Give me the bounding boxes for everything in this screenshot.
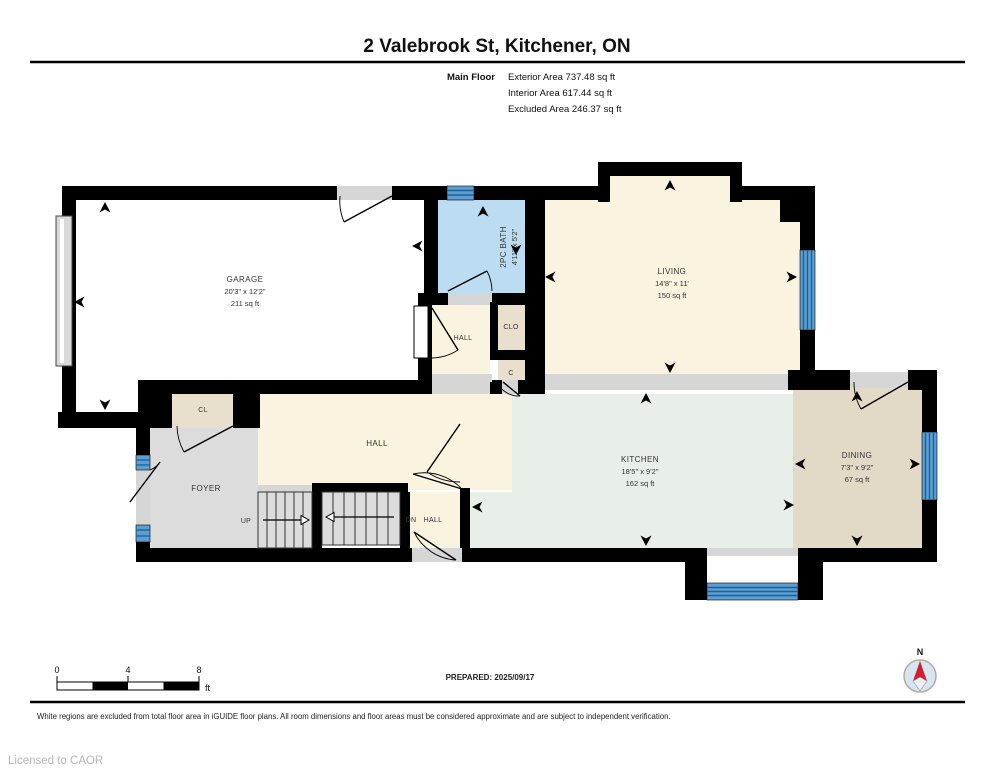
wall-segment bbox=[392, 186, 447, 200]
wall-segment bbox=[788, 370, 850, 390]
footer: 0 4 8 ft PREPARED: 2025/09/17 N White re… bbox=[8, 647, 965, 767]
stat-exterior: Exterior Area 737.48 sq ft bbox=[508, 72, 616, 83]
bath-label: 2PC BATH bbox=[499, 226, 508, 268]
kitchen-label: KITCHEN bbox=[621, 455, 659, 464]
bath-window bbox=[447, 186, 474, 200]
scale-bar: 0 4 8 ft bbox=[54, 665, 210, 693]
garage-label: GARAGE bbox=[227, 275, 264, 284]
wall-segment bbox=[462, 548, 697, 562]
dining-door-opening bbox=[850, 372, 908, 388]
bath-door-threshold bbox=[448, 293, 492, 305]
bay-excluded-floor bbox=[707, 556, 798, 583]
living-window bbox=[800, 250, 815, 330]
wall-segment bbox=[460, 488, 470, 548]
wall-segment bbox=[685, 548, 707, 600]
wall-segment bbox=[424, 186, 438, 302]
wall-segment bbox=[922, 500, 937, 562]
living-kitchen-threshold bbox=[545, 374, 788, 390]
page-title: 2 Valebrook St, Kitchener, ON bbox=[363, 36, 630, 57]
cl-label: CL bbox=[198, 407, 208, 414]
wall-segment bbox=[922, 387, 937, 432]
dining-dims: 7'3" x 9'2" bbox=[841, 463, 874, 472]
clo-label: CLO bbox=[503, 324, 519, 331]
stairs-up bbox=[258, 492, 312, 548]
wall-segment bbox=[812, 548, 937, 562]
bay-threshold bbox=[707, 548, 798, 556]
foyer-label: FOYER bbox=[191, 484, 221, 493]
prepared-date: PREPARED: 2025/09/17 bbox=[446, 673, 535, 682]
garage-dims: 20'3" x 12'2" bbox=[224, 287, 265, 296]
entry-sidelight-top bbox=[136, 455, 150, 470]
stat-interior: Interior Area 617.44 sq ft bbox=[508, 88, 612, 99]
wall-segment bbox=[312, 483, 408, 492]
scale-tick-8: 8 bbox=[196, 665, 201, 675]
dining-label: DINING bbox=[842, 451, 872, 460]
living-dims: 14'8" x 11' bbox=[655, 279, 689, 288]
wall-segment bbox=[233, 394, 260, 428]
compass: N bbox=[904, 647, 936, 692]
dining-area: 67 sq ft bbox=[845, 475, 871, 484]
header: 2 Valebrook St, Kitchener, ON Main Floor… bbox=[30, 36, 965, 115]
garage-door-opening bbox=[337, 186, 392, 200]
wall-segment bbox=[490, 382, 498, 394]
dining-window bbox=[922, 432, 937, 500]
license-text: Licensed to CAOR bbox=[8, 755, 103, 767]
kitchen-area: 162 sq ft bbox=[626, 479, 656, 488]
hall-lower-label: HALL bbox=[424, 517, 443, 524]
up-stairs-threshold bbox=[258, 485, 312, 492]
wall-segment bbox=[490, 302, 498, 350]
wall-segment bbox=[780, 200, 815, 222]
kitchen-dims: 18'5" x 9'2" bbox=[622, 467, 659, 476]
stat-excluded: Excluded Area 246.37 sq ft bbox=[508, 104, 622, 115]
stairs-up-label: UP bbox=[241, 518, 251, 525]
wall-segment bbox=[138, 394, 172, 428]
wall-segment bbox=[425, 293, 448, 305]
wall-segment bbox=[800, 222, 815, 252]
entry-sidelight-bottom bbox=[136, 525, 150, 542]
c-label: C bbox=[508, 370, 513, 377]
floorplan-canvas: 2 Valebrook St, Kitchener, ON Main Floor… bbox=[0, 0, 995, 768]
wall-segment bbox=[908, 370, 937, 390]
bay-window bbox=[707, 583, 798, 600]
wall-segment bbox=[62, 186, 337, 200]
floorplan-page: 2 Valebrook St, Kitchener, ON Main Floor… bbox=[0, 0, 995, 768]
bath-dims: 4'11" x 5'2" bbox=[510, 228, 519, 265]
wall-segment bbox=[730, 186, 815, 200]
hall-main-label: HALL bbox=[366, 439, 388, 448]
disclaimer-text: White regions are excluded from total fl… bbox=[37, 712, 671, 721]
upper-hall-threshold bbox=[432, 374, 492, 394]
wall-segment bbox=[138, 380, 432, 394]
garage-overhead-door bbox=[56, 216, 72, 366]
living-area: 150 sq ft bbox=[658, 291, 688, 300]
stairs-dn-label: DN bbox=[406, 517, 417, 524]
wall-segment bbox=[312, 486, 322, 548]
wall-segment bbox=[525, 186, 545, 394]
wall-segment bbox=[490, 350, 525, 360]
floor-label: Main Floor bbox=[447, 72, 495, 83]
living-label: LIVING bbox=[658, 267, 687, 276]
garage-area: 211 sq ft bbox=[231, 299, 260, 308]
stairs-down bbox=[322, 492, 400, 545]
scale-unit: ft bbox=[205, 683, 211, 693]
wall-segment bbox=[136, 548, 412, 562]
wall-segment bbox=[598, 162, 742, 176]
hall-upper-label: HALL bbox=[454, 335, 473, 342]
scale-tick-4: 4 bbox=[125, 665, 130, 675]
scale-tick-0: 0 bbox=[54, 665, 59, 675]
compass-north-label: N bbox=[917, 647, 924, 657]
